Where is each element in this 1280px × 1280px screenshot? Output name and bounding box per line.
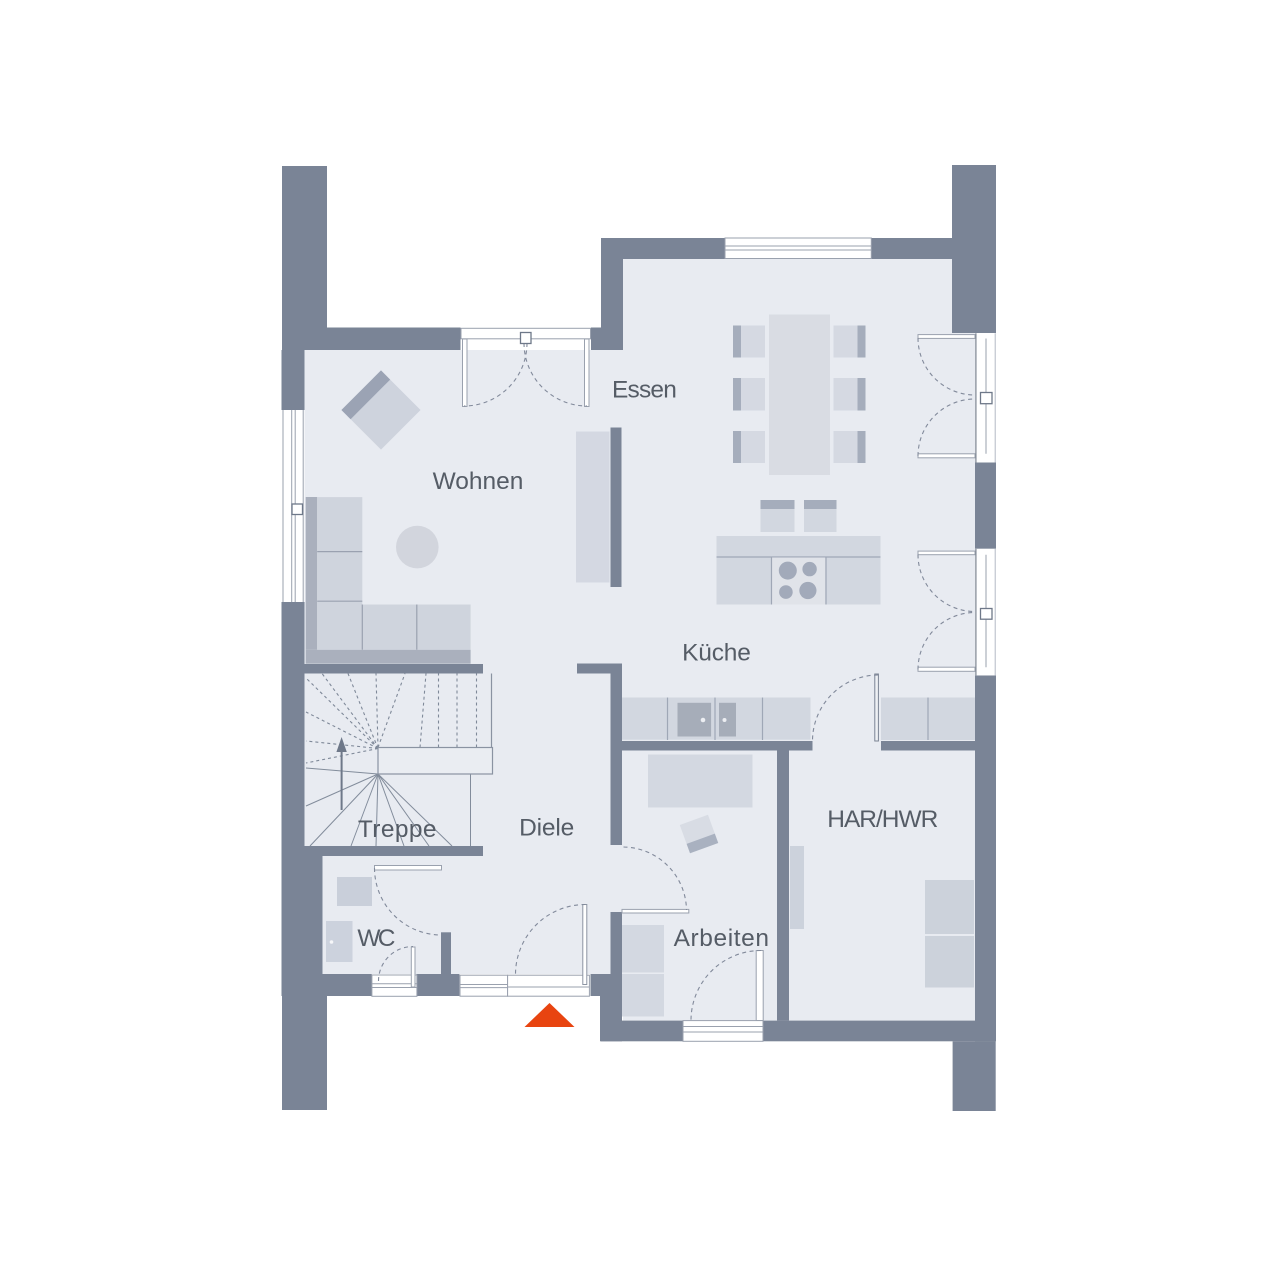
svg-text:Essen: Essen: [612, 377, 676, 404]
svg-text:Wohnen: Wohnen: [433, 468, 524, 495]
svg-text:Küche: Küche: [682, 640, 750, 667]
svg-text:Arbeiten: Arbeiten: [674, 925, 770, 952]
svg-text:Diele: Diele: [519, 815, 574, 842]
svg-text:HAR/HWR: HAR/HWR: [827, 806, 937, 833]
svg-text:WC: WC: [357, 925, 394, 952]
svg-text:Treppe: Treppe: [358, 816, 437, 843]
